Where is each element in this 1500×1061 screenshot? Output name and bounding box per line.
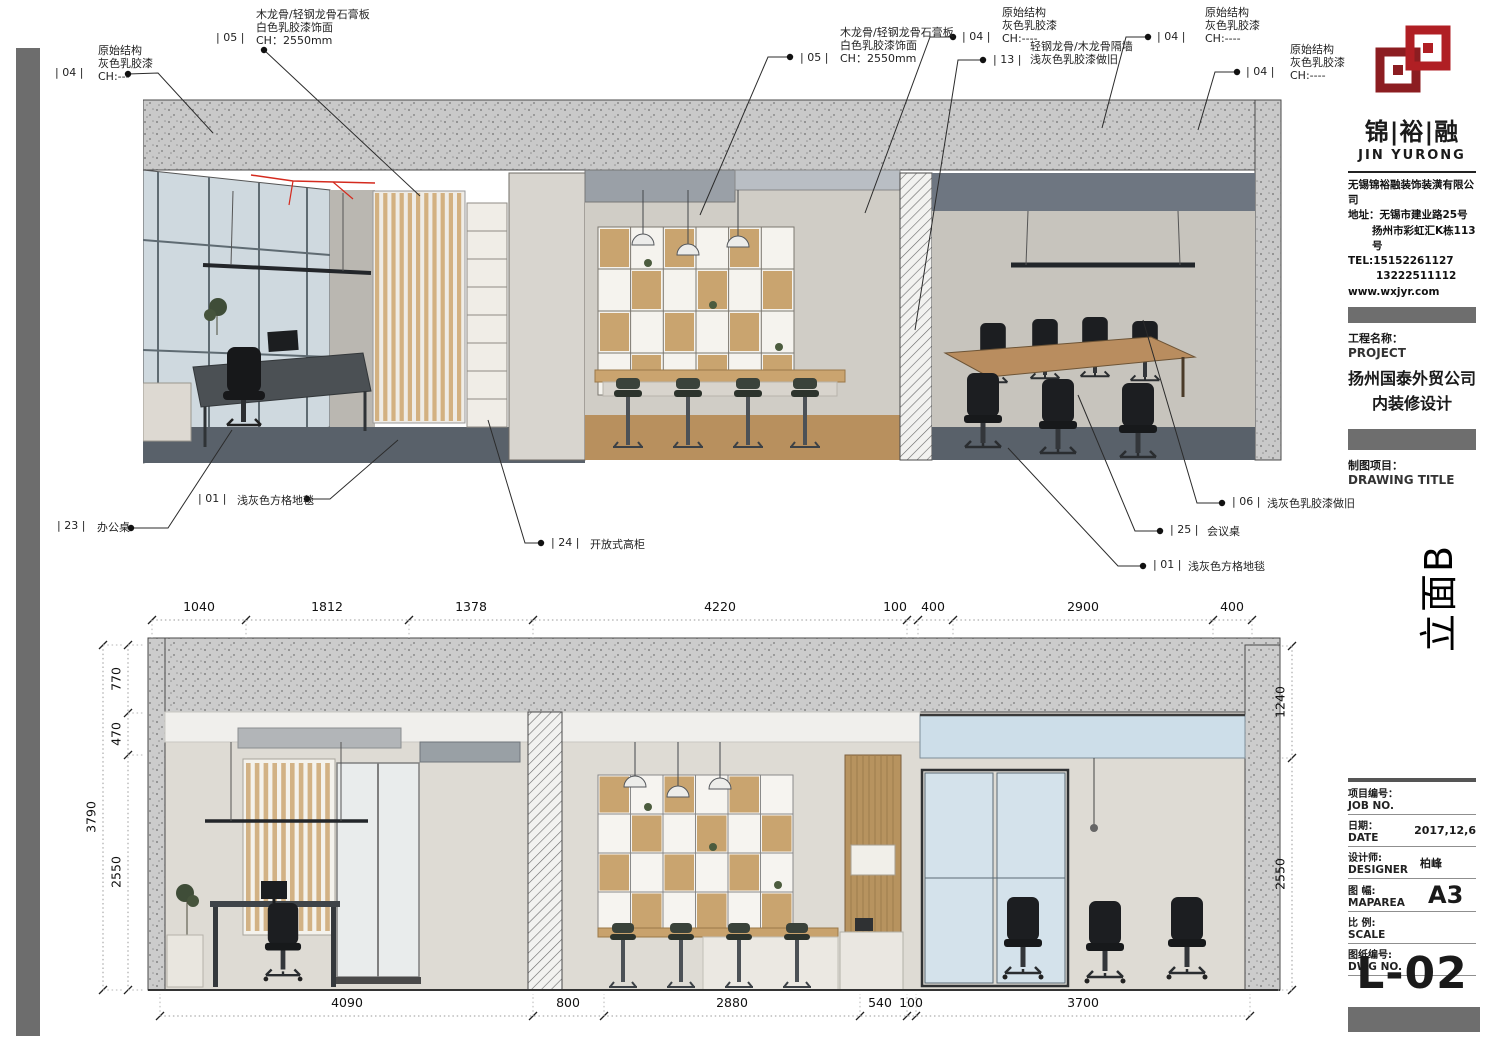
drawing-number: L-02 xyxy=(1348,948,1476,999)
project-name-line2: 内装修设计 xyxy=(1348,391,1476,417)
concrete-ceiling-band xyxy=(143,100,1255,170)
title-block-field: 设计师:DESIGNER柏峰 xyxy=(1348,847,1476,879)
callout-label: 开放式高柜 xyxy=(590,536,645,552)
separator-bar xyxy=(1348,307,1476,323)
dimension-label: 3700 xyxy=(1067,995,1099,1010)
callout-label: 会议桌 xyxy=(1207,523,1240,539)
company-address-2: 扬州市彩虹汇K栋113号 xyxy=(1348,224,1476,254)
open-shelving xyxy=(598,775,793,932)
title-block-field: 项目编号：JOB NO. xyxy=(1348,783,1476,815)
concrete-wall-right xyxy=(1255,100,1281,460)
field-value: 2017,12,6 xyxy=(1414,824,1476,837)
keynote-code: | 05 | xyxy=(216,31,244,44)
title-block-field: 图 幅:MAPAREAA3 xyxy=(1348,879,1476,912)
concrete-slab xyxy=(148,638,1280,712)
material-annotation: 木龙骨/轻钢龙骨石膏板白色乳胶漆饰面CH：2550mm xyxy=(256,8,370,47)
field-value: A3 xyxy=(1428,881,1463,909)
keynote-code: | 01 | xyxy=(198,492,226,505)
title-block-field: 日期：DATE2017,12,6 xyxy=(1348,815,1476,847)
clerestory-glass-band xyxy=(920,715,1245,758)
company-address-1: 地址：无锡市建业路25号 xyxy=(1348,208,1476,223)
title-block: 锦|裕|融 JIN YURONG 无锡锦裕融装饰装潢有限公司 地址：无锡市建业路… xyxy=(1348,22,1476,487)
keynote-code: | 13 | xyxy=(993,53,1021,66)
company-info: 无锡锦裕融装饰装潢有限公司 地址：无锡市建业路25号 扬州市彩虹汇K栋113号 … xyxy=(1348,171,1476,300)
sheet-binding-bar xyxy=(16,48,40,1036)
drawing-sheet: 锦|裕|融 JIN YURONG 无锡锦裕融装饰装潢有限公司 地址：无锡市建业路… xyxy=(0,0,1500,1061)
callout-label: 浅灰色方格地毯 xyxy=(1188,558,1265,574)
company-name: 无锡锦裕融装饰装潢有限公司 xyxy=(1348,178,1476,208)
project-name-line1: 扬州国泰外贸公司 xyxy=(1348,366,1476,392)
wood-floor xyxy=(585,415,900,460)
gypsum-ceiling-panel xyxy=(585,170,735,202)
dimension-label: 2550 xyxy=(1273,858,1288,890)
keynote-code: | 06 | xyxy=(1232,495,1260,508)
material-annotation: 轻钢龙骨/木龙骨隔墙浅灰色乳胶漆做旧 xyxy=(1030,40,1133,66)
keynote-code: | 24 | xyxy=(551,536,579,549)
cabinet xyxy=(167,935,203,987)
callout-label: 浅灰色方格地毯 xyxy=(237,492,314,508)
elevation-view xyxy=(143,635,1283,1000)
dimension-label: 2900 xyxy=(1067,599,1099,614)
keynote-code: | 25 | xyxy=(1170,523,1198,536)
dimension-label: 1378 xyxy=(455,599,487,614)
dimension-label: 100 xyxy=(883,599,907,614)
project-label-en: PROJECT xyxy=(1348,346,1476,360)
callout-label: 浅灰色乳胶漆做旧 xyxy=(1267,495,1355,511)
tea-counter xyxy=(840,932,903,990)
keynote-code: | 04 | xyxy=(962,30,990,43)
dimension-label: 540 xyxy=(868,995,892,1010)
field-value: 柏峰 xyxy=(1420,855,1442,871)
project-label-cn: 工程名称： xyxy=(1348,330,1476,346)
keynote-code: | 04 | xyxy=(1157,30,1185,43)
company-tel-1: TEL:15152261127 xyxy=(1348,254,1476,269)
kettle xyxy=(855,918,873,931)
callout-label: 办公桌 xyxy=(97,519,130,535)
drawing-title-label-cn: 制图项目： xyxy=(1348,457,1476,473)
separator-bar xyxy=(1348,429,1476,450)
perspective-view xyxy=(143,95,1283,465)
keynote-code: | 23 | xyxy=(57,519,85,532)
dimension-label: 3790 xyxy=(84,801,99,833)
monitor xyxy=(267,330,298,352)
cabinet xyxy=(143,383,191,441)
drawing-title-label-en: DRAWING TITLE xyxy=(1348,473,1476,487)
fields-top-bar xyxy=(1348,778,1476,782)
brand-name-cn: 锦|裕|融 xyxy=(1348,112,1476,147)
hatched-column xyxy=(528,712,562,990)
dimension-label: 1812 xyxy=(311,599,343,614)
dimension-label: 1240 xyxy=(1273,686,1288,718)
keynote-code: | 04 | xyxy=(55,66,83,79)
ac-vent xyxy=(420,742,520,762)
bottom-bar xyxy=(1348,1007,1480,1032)
hatched-wall-column xyxy=(900,173,932,460)
keynote-code: | 05 | xyxy=(800,51,828,64)
material-annotation: 原始结构灰色乳胶漆CH:---- xyxy=(1205,6,1260,45)
keynote-code: | 01 | xyxy=(1153,558,1181,571)
keynote-code: | 04 | xyxy=(1246,65,1274,78)
company-tel-2: 13222511112 xyxy=(1348,269,1476,284)
dimension-label: 100 xyxy=(899,995,923,1010)
left-wall xyxy=(148,638,165,990)
dimension-label: 770 xyxy=(109,667,124,691)
dimension-label: 2880 xyxy=(716,995,748,1010)
material-annotation: 原始结构灰色乳胶漆CH:---- xyxy=(1290,43,1345,82)
monitor xyxy=(261,881,287,899)
wood-cabinet xyxy=(845,755,901,932)
pelmet-box xyxy=(238,728,401,748)
company-website: www.wxjyr.com xyxy=(1348,285,1476,300)
dimension-label: 2550 xyxy=(109,856,124,888)
jin-yurong-logo xyxy=(1370,22,1454,110)
dimension-label: 470 xyxy=(109,722,124,746)
dimension-label: 400 xyxy=(921,599,945,614)
brand-name-en: JIN YURONG xyxy=(1348,148,1476,163)
dimension-label: 1040 xyxy=(183,599,215,614)
dimension-label: 400 xyxy=(1220,599,1244,614)
dimension-label: 4220 xyxy=(704,599,736,614)
material-annotation: 原始结构灰色乳胶漆CH:--- xyxy=(98,44,153,83)
material-annotation: 木龙骨/轻钢龙骨石膏板白色乳胶漆饰面CH：2550mm xyxy=(840,26,954,65)
title-block-field: 比 例:SCALE xyxy=(1348,912,1476,944)
pillar xyxy=(509,173,585,460)
elevation-tag: 立面B xyxy=(1408,544,1463,652)
dimension-label: 4090 xyxy=(331,995,363,1010)
dimension-label: 800 xyxy=(556,995,580,1010)
